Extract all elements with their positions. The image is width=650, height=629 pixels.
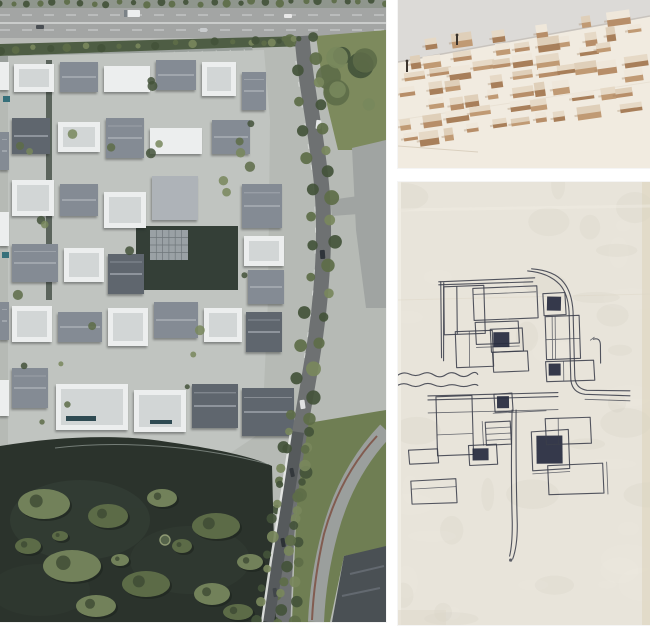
paper-left-edge [398, 182, 401, 625]
model-svg [398, 0, 650, 168]
paper-corner-shade [398, 610, 446, 625]
highway [0, 8, 386, 38]
sketch-svg [398, 182, 650, 625]
model-photo-panel [398, 0, 650, 168]
sketch-panel [398, 182, 650, 625]
aerial-svg [0, 0, 386, 622]
aerial-photo-panel [0, 0, 386, 622]
ring-island [160, 535, 170, 545]
paper-right-edge [642, 182, 650, 625]
